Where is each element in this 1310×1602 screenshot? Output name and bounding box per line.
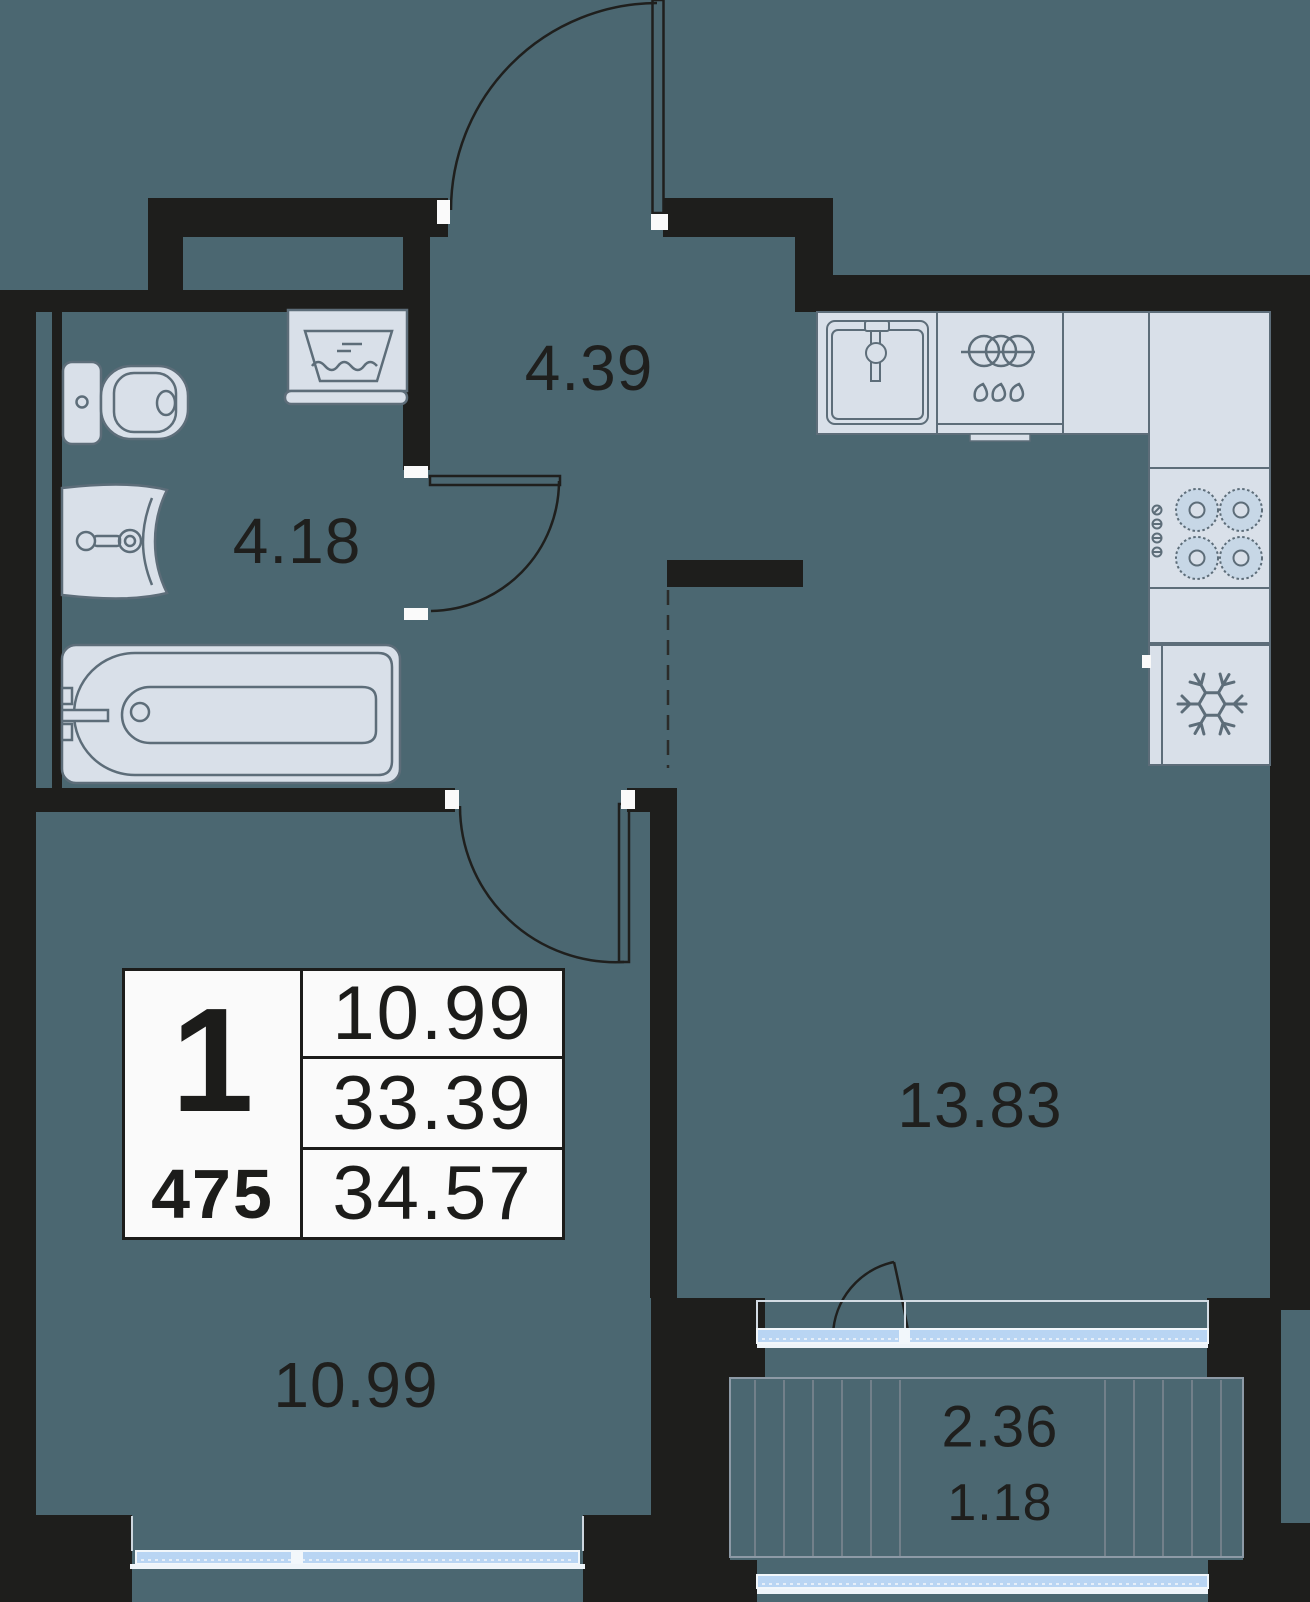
entrance-door-icon bbox=[451, 0, 664, 213]
rooms-count: 1 bbox=[125, 971, 303, 1150]
floor-plan: 4.39 4.18 13.83 10.99 2.36 1.18 1 10.99 … bbox=[0, 0, 1310, 1602]
area-without-balcony-value: 33.39 bbox=[303, 1059, 562, 1150]
balcony-glazing-icon bbox=[757, 1575, 1208, 1594]
fridge-icon bbox=[1142, 645, 1270, 765]
bedroom-area-label: 10.99 bbox=[273, 1348, 438, 1422]
balcony-window-icon bbox=[757, 1301, 1208, 1348]
bathroom-area-label: 4.18 bbox=[233, 504, 362, 578]
balcony-area-label: 2.36 bbox=[942, 1394, 1059, 1461]
toilet-icon bbox=[63, 362, 188, 444]
plan-graphics bbox=[0, 0, 1310, 1602]
apartment-info-table: 1 10.99 33.39 475 34.57 bbox=[122, 968, 565, 1240]
bathtub-icon bbox=[62, 645, 400, 783]
washbasin-icon bbox=[62, 484, 167, 598]
door-jambs bbox=[404, 200, 668, 809]
kitchen-counter bbox=[817, 312, 1270, 468]
balcony-door-icon bbox=[833, 1262, 909, 1336]
hallway-area-label: 4.39 bbox=[525, 331, 654, 405]
kitchen-living-area-label: 13.83 bbox=[897, 1068, 1062, 1142]
balcony-reduced-area-label: 1.18 bbox=[947, 1473, 1052, 1533]
total-area-value: 34.57 bbox=[303, 1150, 562, 1237]
bedroom-window-icon bbox=[130, 1516, 585, 1569]
bedroom-door-icon bbox=[460, 804, 629, 962]
stove-burners-icon bbox=[1149, 468, 1270, 643]
fridge-handle bbox=[1142, 655, 1151, 668]
living-area-value: 10.99 bbox=[303, 971, 562, 1059]
washing-machine-icon bbox=[285, 310, 407, 404]
apartment-number: 475 bbox=[125, 1150, 303, 1237]
bathroom-door-icon bbox=[430, 476, 560, 611]
